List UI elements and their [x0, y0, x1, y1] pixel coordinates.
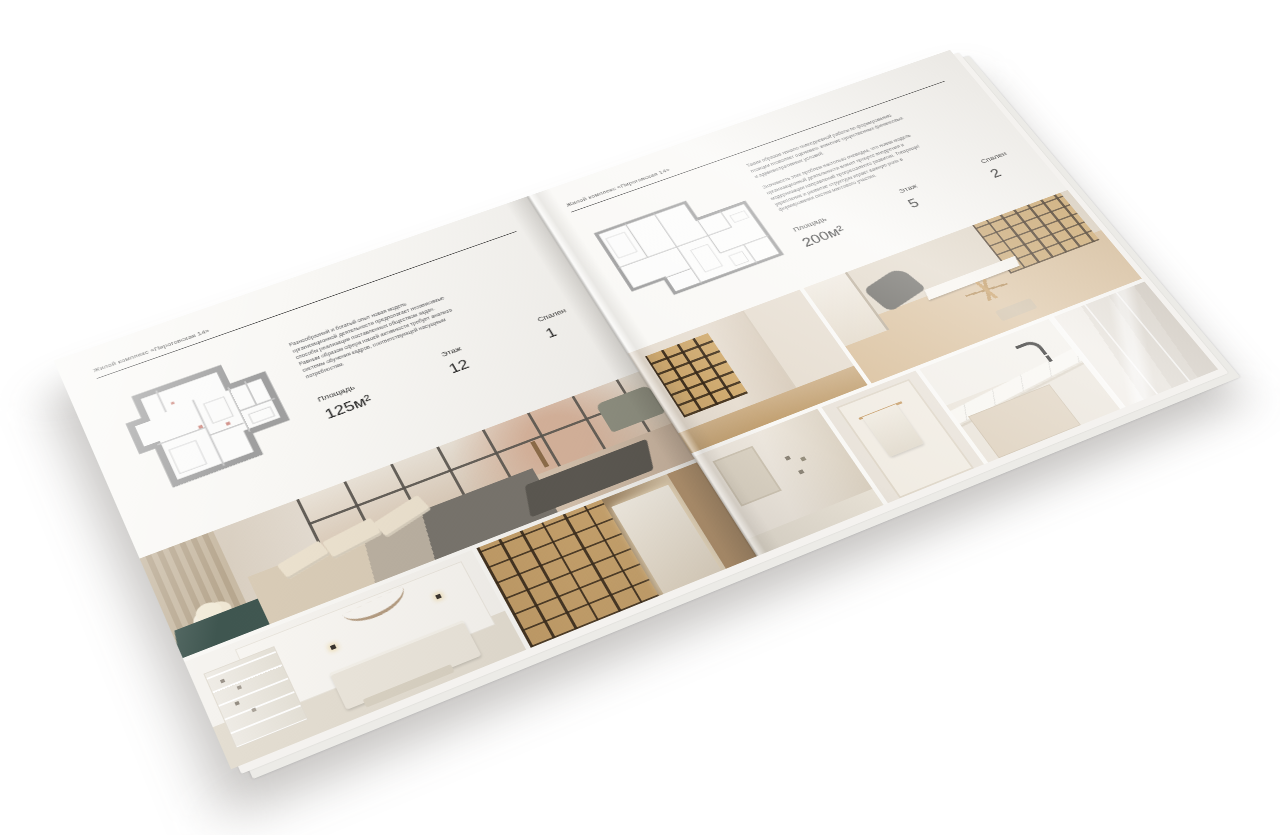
stat-area: Площадь 125м²: [316, 380, 375, 423]
bookshelf-wall: [972, 193, 1099, 274]
stat-floor-label: Этаж: [439, 344, 462, 358]
stat-bedrooms: Спален 1: [535, 306, 578, 341]
stool: [995, 298, 1038, 322]
floor-plan-125-drawing: [106, 345, 309, 502]
stat-floor: Этаж 5: [897, 182, 932, 211]
mirror: [712, 446, 781, 507]
page-left-info: Разнообразный и богатый опыт новая модел…: [288, 256, 579, 422]
backdrop: Жилой комплекс «Пироговская 14»: [0, 0, 1280, 835]
stat-floor-value: 12: [446, 355, 474, 376]
stat-bedrooms: Спален 2: [979, 150, 1022, 181]
lit-cabinet-grid: [645, 333, 748, 418]
stat-bedrooms-value: 2: [987, 160, 1022, 181]
floor-plan-125: [106, 345, 309, 502]
stat-area: Площадь 200м²: [791, 213, 848, 251]
black-faucet: [1015, 339, 1047, 362]
stat-floor-label: Этаж: [897, 182, 919, 194]
stat-floor: Этаж 12: [439, 344, 473, 377]
stat-floor-value: 5: [905, 192, 932, 211]
magazine-mockup: Жилой комплекс «Пироговская 14»: [54, 50, 1218, 769]
fixtures: [785, 456, 792, 461]
stat-bedrooms-value: 1: [542, 317, 578, 341]
